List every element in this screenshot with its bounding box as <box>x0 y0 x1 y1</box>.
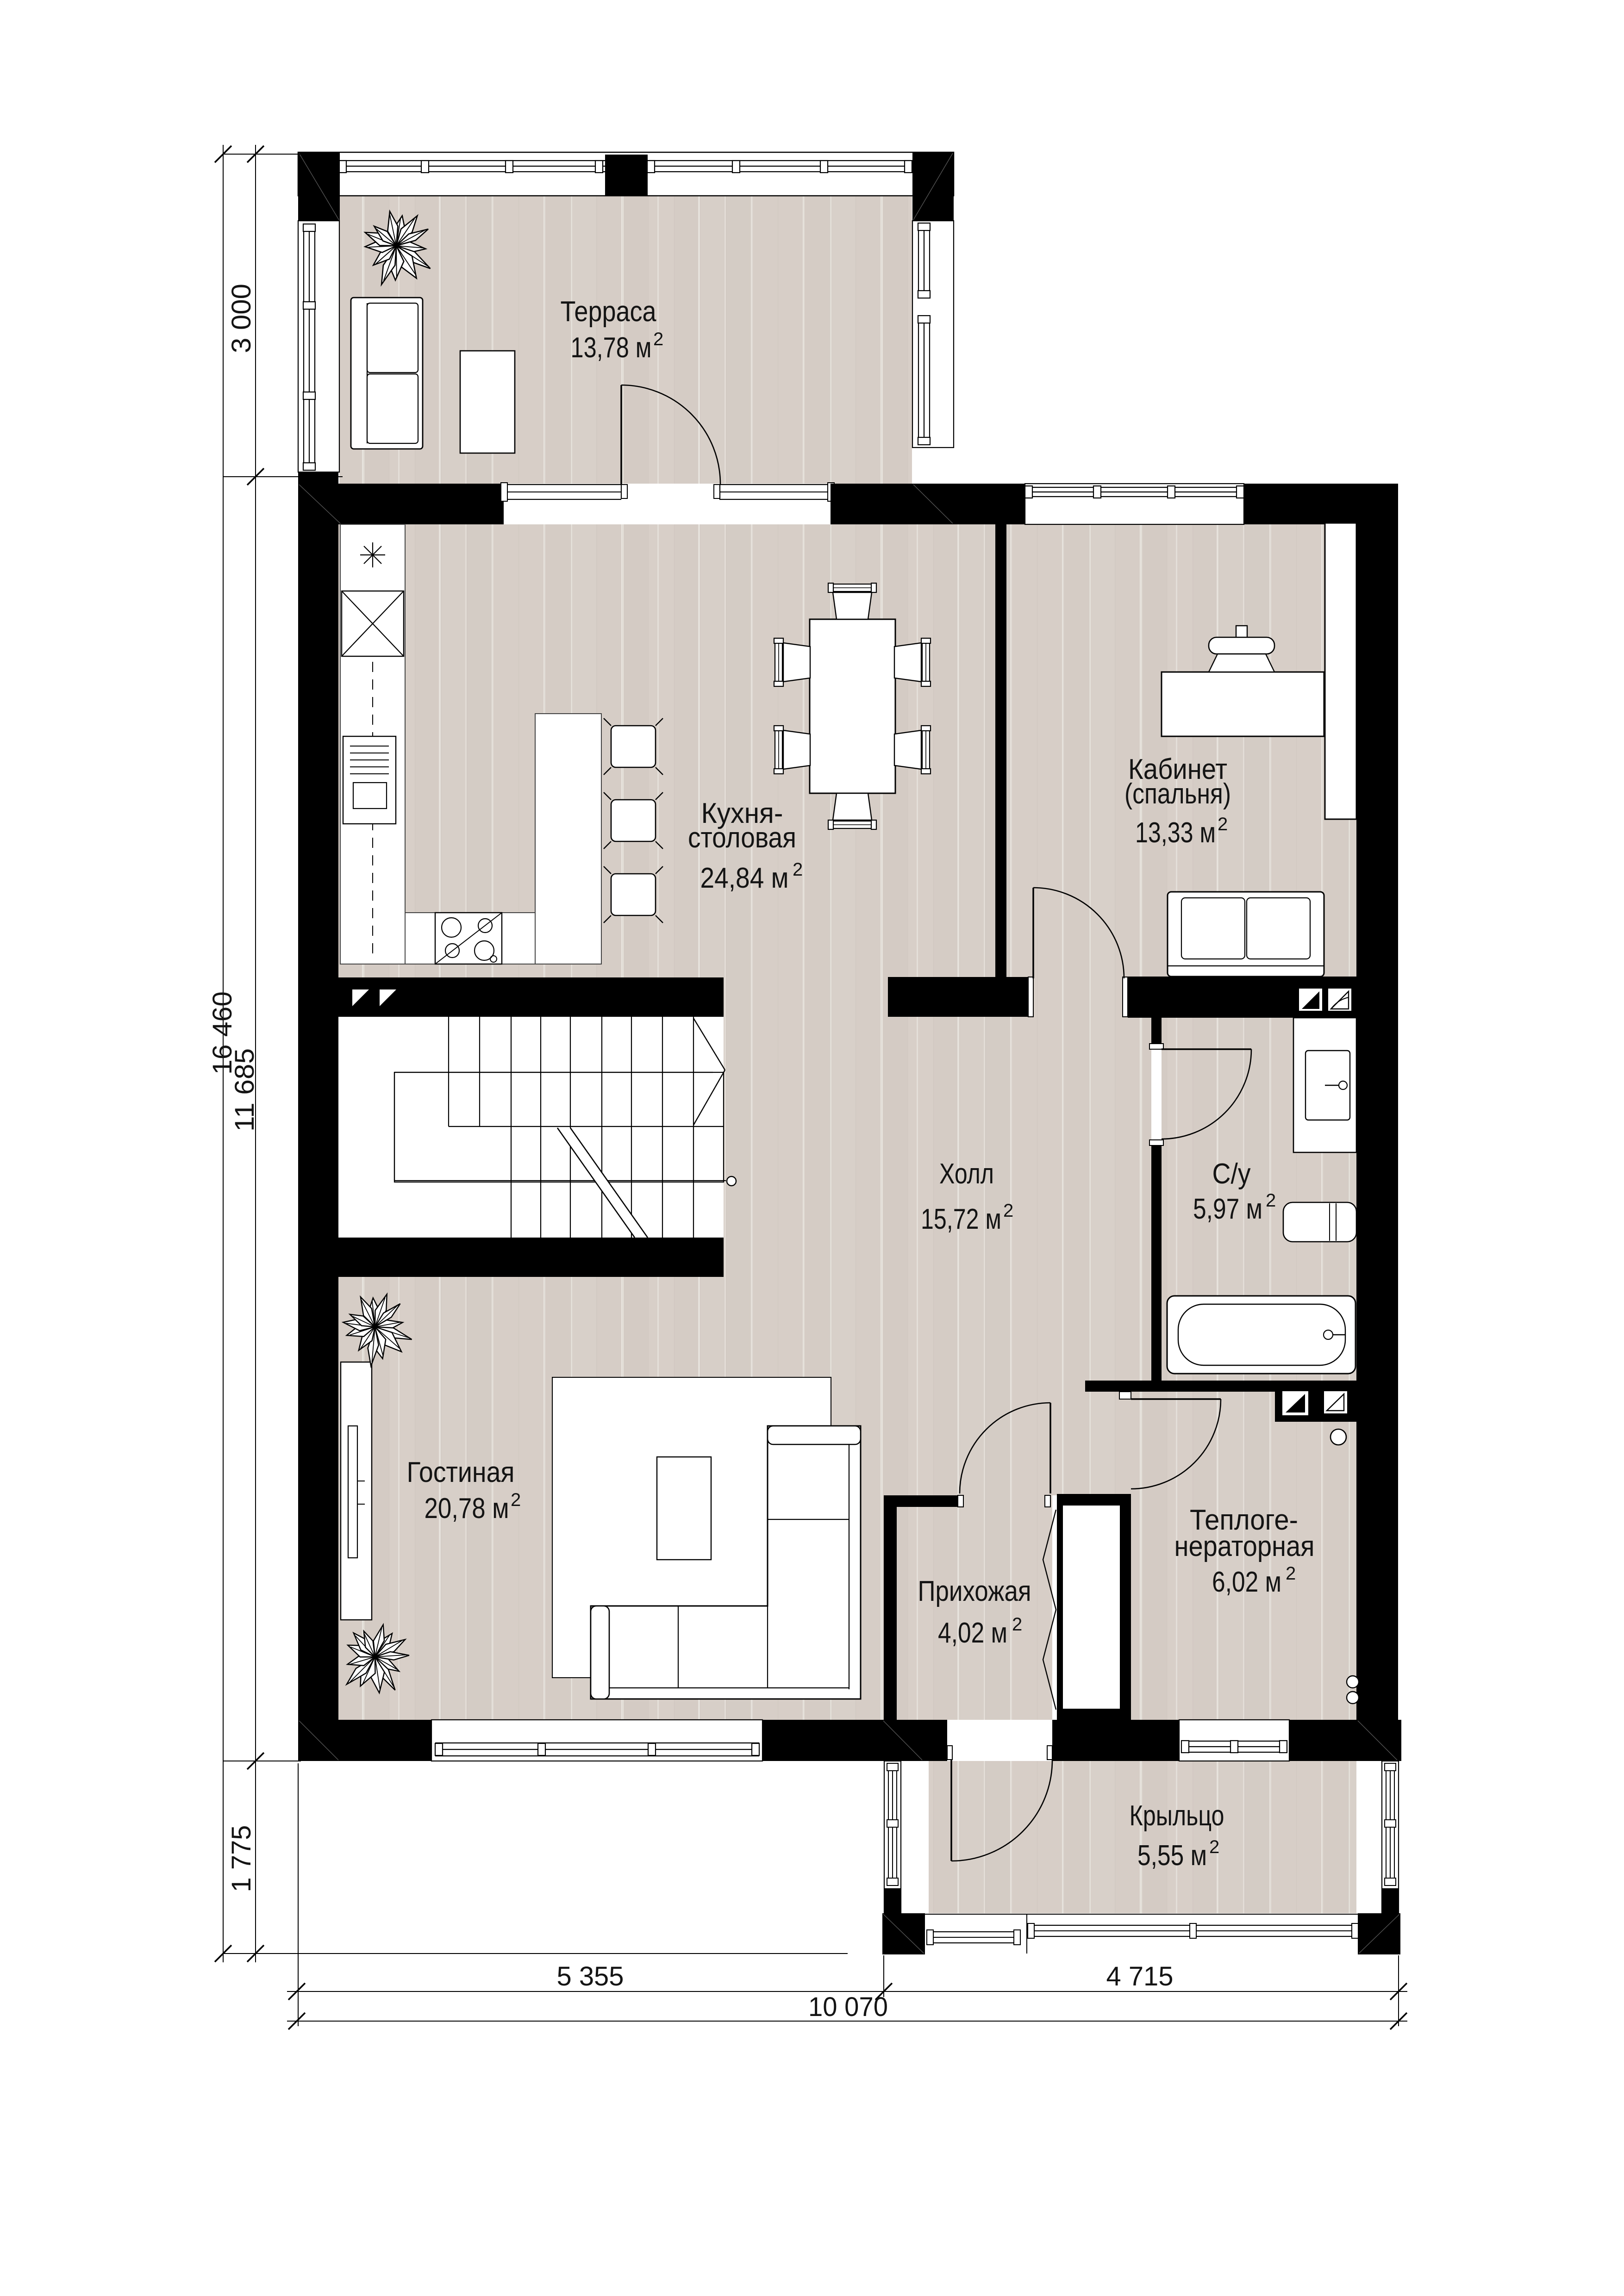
svg-text:13,33 м: 13,33 м <box>1135 817 1216 849</box>
svg-text:4 715: 4 715 <box>1106 1961 1174 1991</box>
svg-text:2: 2 <box>653 329 663 349</box>
svg-text:2: 2 <box>1218 814 1228 834</box>
svg-text:5,97 м: 5,97 м <box>1193 1193 1262 1225</box>
svg-text:Терраса: Терраса <box>561 296 656 328</box>
svg-text:С/у: С/у <box>1212 1158 1251 1190</box>
svg-text:3 000: 3 000 <box>226 284 256 353</box>
svg-text:15,72 м: 15,72 м <box>921 1203 1001 1235</box>
svg-text:2: 2 <box>1209 1837 1219 1857</box>
svg-text:2: 2 <box>1003 1201 1013 1221</box>
svg-text:2: 2 <box>1012 1614 1022 1635</box>
svg-text:2: 2 <box>511 1490 521 1510</box>
svg-text:1 775: 1 775 <box>226 1825 256 1892</box>
svg-text:(спальня): (спальня) <box>1124 778 1231 810</box>
svg-text:2: 2 <box>793 859 803 880</box>
svg-text:13,78 м: 13,78 м <box>571 332 652 364</box>
svg-text:10 070: 10 070 <box>808 1992 888 2022</box>
svg-text:5,55 м: 5,55 м <box>1137 1840 1207 1872</box>
svg-text:Прихожая: Прихожая <box>918 1575 1031 1607</box>
svg-text:нераторная: нераторная <box>1174 1531 1315 1562</box>
svg-text:4,02 м: 4,02 м <box>938 1617 1007 1649</box>
svg-text:24,84 м: 24,84 м <box>700 862 789 894</box>
svg-text:столовая: столовая <box>688 822 796 854</box>
svg-text:Крыльцо: Крыльцо <box>1130 1800 1224 1832</box>
svg-text:Гостиная: Гостиная <box>407 1456 515 1488</box>
svg-text:20,78 м: 20,78 м <box>425 1493 509 1524</box>
svg-text:2: 2 <box>1286 1563 1296 1584</box>
svg-text:Холл: Холл <box>939 1158 994 1190</box>
svg-text:6,02 м: 6,02 м <box>1212 1566 1281 1598</box>
svg-text:2: 2 <box>1266 1190 1276 1211</box>
svg-text:5 355: 5 355 <box>557 1961 624 1991</box>
svg-text:11 685: 11 685 <box>230 1048 260 1132</box>
